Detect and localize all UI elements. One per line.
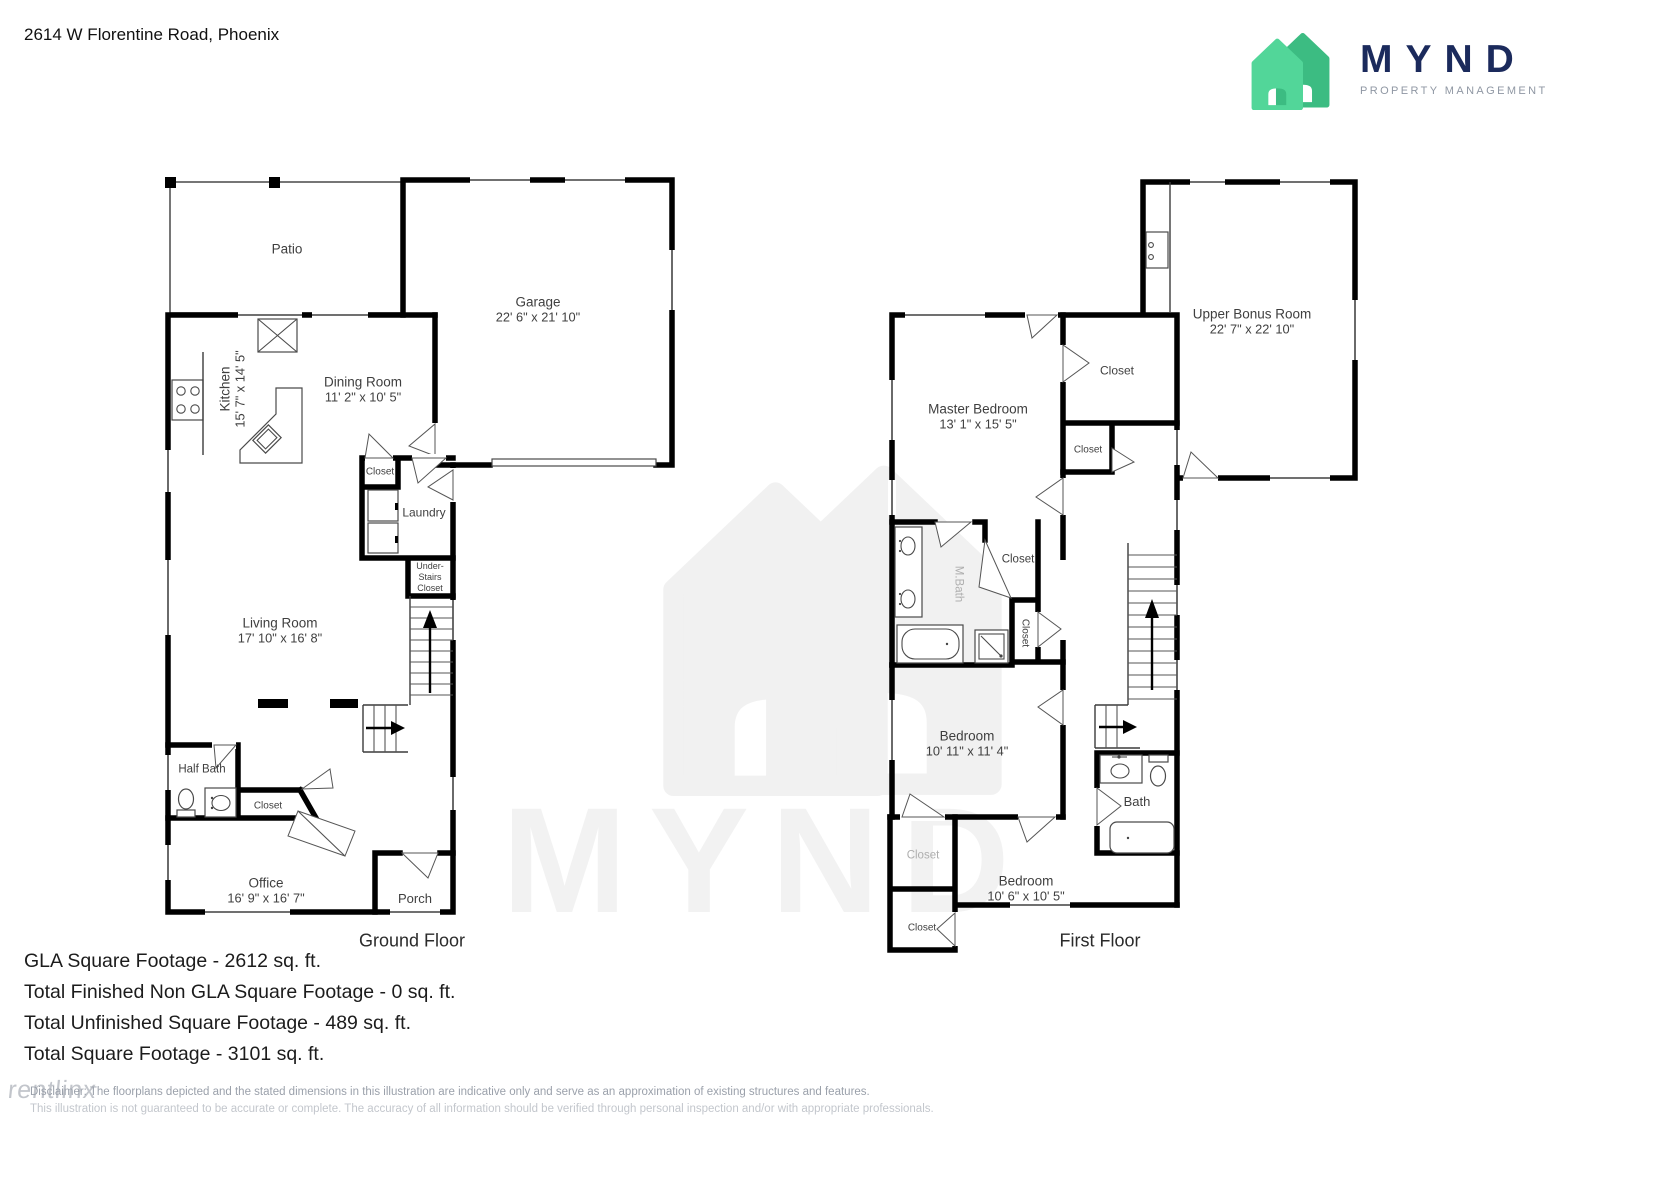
dryer-icon xyxy=(368,523,398,553)
kitchen-island-icon xyxy=(240,388,302,463)
room-label-office: Office16' 9" x 16' 7" xyxy=(227,877,304,906)
stairs-icon xyxy=(363,596,453,752)
wall-stub xyxy=(258,699,288,708)
first-floor-caption: First Floor xyxy=(1060,931,1141,952)
disclaimer-line-2: This illustration is not guaranteed to b… xyxy=(30,1103,934,1115)
ground-floor-caption: Ground Floor xyxy=(359,931,465,952)
total-square-footage: Total Square Footage - 3101 sq. ft. xyxy=(24,1043,455,1066)
door-swing-icon xyxy=(1038,690,1063,725)
garage-door-icon xyxy=(492,459,656,466)
toilet-icon xyxy=(177,789,195,817)
room-label-master-bath: M.Bath xyxy=(952,566,965,602)
door-swing-icon xyxy=(302,769,333,789)
door-swing-icon xyxy=(428,470,453,500)
pantry-icon xyxy=(258,319,297,352)
patio-post-icon xyxy=(165,177,176,188)
shower-icon xyxy=(975,630,1008,663)
door-swing-icon xyxy=(1038,612,1061,647)
door-swing-icon xyxy=(402,853,438,878)
room-label-closet: Closet xyxy=(254,801,282,812)
mynd-logo: MYND PROPERTY MANAGEMENT xyxy=(1240,30,1560,110)
door-swing-icon xyxy=(365,434,393,458)
logo-wordmark: MYND xyxy=(1360,40,1548,79)
bathtub-icon xyxy=(897,625,963,663)
room-label-bedroom: Bedroom10' 11" x 11' 4" xyxy=(926,730,1009,759)
unfinished-square-footage: Total Unfinished Square Footage - 489 sq… xyxy=(24,1012,455,1035)
stairs-icon xyxy=(1095,543,1177,748)
washer-icon xyxy=(368,490,398,521)
room-label-patio: Patio xyxy=(272,243,303,258)
mynd-logo-icon xyxy=(1240,32,1340,110)
room-label-closet: Closet xyxy=(1002,554,1035,567)
door-swing-icon xyxy=(409,424,435,456)
door-swing-icon xyxy=(1036,478,1063,515)
room-label-bath: Bath xyxy=(1124,795,1151,809)
toilet-icon xyxy=(1149,755,1168,786)
room-label-bedroom: Bedroom10' 6" x 10' 5" xyxy=(987,875,1064,904)
door-swing-icon xyxy=(1063,345,1089,382)
room-label-upper-bonus-room: Upper Bonus Room22' 7" x 22' 10" xyxy=(1193,308,1312,337)
square-footage-summary: GLA Square Footage - 2612 sq. ft. Total … xyxy=(24,950,455,1074)
double-sink-icon xyxy=(895,527,922,617)
disclaimer-line-1: Disclaimer: The floorplans depicted and … xyxy=(30,1086,870,1098)
stove-icon xyxy=(172,380,203,420)
sink-icon xyxy=(205,788,236,817)
room-label-closet: Closet xyxy=(1020,619,1031,647)
gla-square-footage: GLA Square Footage - 2612 sq. ft. xyxy=(24,950,455,973)
room-label-half-bath: Half Bath xyxy=(178,764,225,777)
room-label-closet: Closet xyxy=(366,467,394,478)
door-swing-icon xyxy=(1183,452,1218,478)
room-label-master-bedroom: Master Bedroom13' 1" x 15' 5" xyxy=(928,403,1028,432)
bathtub-icon xyxy=(1110,822,1174,853)
mynd-watermark-icon: MYND xyxy=(502,476,1032,944)
room-label-garage: Garage22' 6" x 21' 10" xyxy=(496,296,580,325)
room-label-kitchen: Kitchen15' 7" x 14' 5" xyxy=(219,350,248,427)
room-label-under-stairs-closet: Under- Stairs Closet xyxy=(416,561,444,593)
floorplan-page: MYND xyxy=(0,0,1680,1188)
door-swing-icon xyxy=(1097,788,1121,825)
room-label-closet: Closet xyxy=(1074,445,1102,456)
door-swing-icon xyxy=(1112,448,1134,472)
water-heater-icon xyxy=(1146,232,1168,268)
non-gla-square-footage: Total Finished Non GLA Square Footage - … xyxy=(24,981,455,1004)
room-label-closet: Closet xyxy=(908,923,936,934)
logo-subtitle: PROPERTY MANAGEMENT xyxy=(1360,85,1548,97)
room-label-living-room: Living Room17' 10" x 16' 8" xyxy=(238,617,322,646)
patio-post-icon xyxy=(269,177,280,188)
room-label-dining-room: Dining Room11' 2" x 10' 5" xyxy=(324,376,402,405)
door-swing-icon xyxy=(1027,315,1057,338)
room-label-closet: Closet xyxy=(907,850,940,863)
property-address: 2614 W Florentine Road, Phoenix xyxy=(24,25,279,45)
room-label-porch: Porch xyxy=(398,892,432,906)
sink-icon xyxy=(1100,755,1142,783)
wall-stub xyxy=(330,699,358,708)
room-label-closet: Closet xyxy=(1100,364,1134,377)
room-label-laundry: Laundry xyxy=(402,506,445,519)
